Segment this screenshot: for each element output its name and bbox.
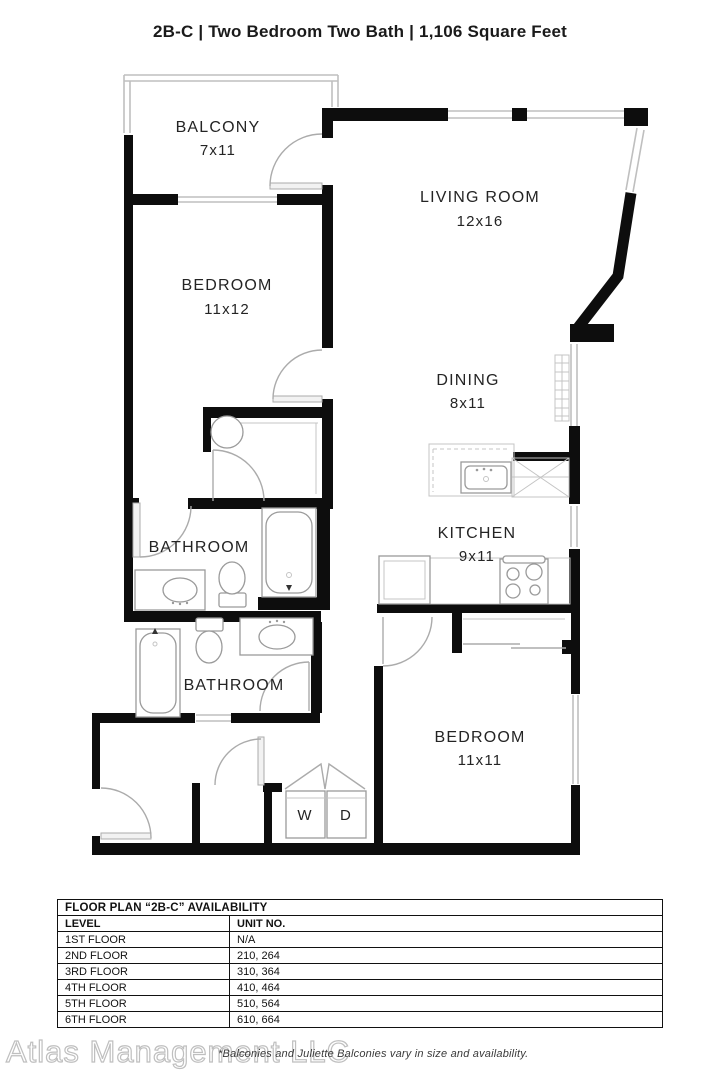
unit-cell: 610, 664 xyxy=(230,1012,663,1028)
living-room-label: LIVING ROOM xyxy=(420,189,540,206)
floor-plan: BALCONY 7x11 LIVING ROOM 12x16 BEDROOM 1… xyxy=(0,65,720,865)
bathroom2-label: BATHROOM xyxy=(184,677,285,694)
kitchen-island-sink xyxy=(429,444,514,496)
bathroom1-toilet xyxy=(219,562,246,607)
level-cell: 1ST FLOOR xyxy=(58,932,230,948)
stove xyxy=(500,556,548,604)
balcony-label: BALCONY xyxy=(176,119,261,136)
radiator xyxy=(555,355,569,421)
dryer-label: D xyxy=(340,807,352,824)
bathroom1-vanity xyxy=(135,570,205,610)
bedroom2-label: BEDROOM xyxy=(434,729,525,746)
table-header-row: LEVEL UNIT NO. xyxy=(58,916,663,932)
bedroom2-door xyxy=(383,617,432,666)
hall-closet-door xyxy=(215,737,264,785)
dining-dims: 8x11 xyxy=(450,395,486,412)
page-title: 2B-C | Two Bedroom Two Bath | 1,106 Squa… xyxy=(0,22,720,42)
level-cell: 6TH FLOOR xyxy=(58,1012,230,1028)
unit-cell: 510, 564 xyxy=(230,996,663,1012)
availability-table: FLOOR PLAN “2B-C” AVAILABILITY LEVEL UNI… xyxy=(57,899,663,1028)
table-row: 5TH FLOOR 510, 564 xyxy=(58,996,663,1012)
fixtures xyxy=(135,355,570,838)
table-row: 6TH FLOOR 610, 664 xyxy=(58,1012,663,1028)
bathroom2-tub xyxy=(136,628,180,717)
table-row: 1ST FLOOR N/A xyxy=(58,932,663,948)
bathroom2-vanity xyxy=(240,618,313,655)
walls xyxy=(92,108,648,855)
bedroom2-dims: 11x11 xyxy=(458,752,503,769)
bathroom1-tub xyxy=(262,508,316,597)
footer: Atlas Management LLC *Balconies and Juli… xyxy=(0,1032,720,1080)
bedroom1-dims: 11x12 xyxy=(204,301,250,318)
level-cell: 4TH FLOOR xyxy=(58,980,230,996)
col-header-unit-no: UNIT NO. xyxy=(230,916,663,932)
unit-cell: 210, 264 xyxy=(230,948,663,964)
bedroom2-closet xyxy=(463,619,566,648)
balcony-door xyxy=(270,134,322,189)
table-title-row: FLOOR PLAN “2B-C” AVAILABILITY xyxy=(58,900,663,916)
col-header-level: LEVEL xyxy=(58,916,230,932)
bedroom1-door xyxy=(273,350,322,402)
bathroom2-toilet xyxy=(196,618,223,663)
disclaimer-text: *Balconies and Juliette Balconies vary i… xyxy=(218,1048,528,1060)
level-cell: 5TH FLOOR xyxy=(58,996,230,1012)
bedroom1-label: BEDROOM xyxy=(181,277,272,294)
dining-label: DINING xyxy=(436,372,499,389)
bathroom1-label: BATHROOM xyxy=(149,539,250,556)
living-room-dims: 12x16 xyxy=(457,213,504,230)
level-cell: 3RD FLOOR xyxy=(58,964,230,980)
table-title: FLOOR PLAN “2B-C” AVAILABILITY xyxy=(58,900,663,916)
laundry-bifold-doors xyxy=(285,764,365,789)
kitchen-pantry xyxy=(512,458,569,497)
balcony-dims: 7x11 xyxy=(200,142,236,159)
table-row: 2ND FLOOR 210, 264 xyxy=(58,948,663,964)
refrigerator xyxy=(379,556,430,604)
closet-door xyxy=(213,450,264,501)
kitchen-dims: 9x11 xyxy=(459,548,495,565)
entry-door xyxy=(101,788,151,839)
unit-cell: 410, 464 xyxy=(230,980,663,996)
table-row: 3RD FLOOR 310, 364 xyxy=(58,964,663,980)
closet-fixture xyxy=(211,416,243,448)
table-row: 4TH FLOOR 410, 464 xyxy=(58,980,663,996)
unit-cell: 310, 364 xyxy=(230,964,663,980)
washer-label: W xyxy=(297,807,312,824)
unit-cell: N/A xyxy=(230,932,663,948)
level-cell: 2ND FLOOR xyxy=(58,948,230,964)
kitchen-label: KITCHEN xyxy=(438,525,517,542)
